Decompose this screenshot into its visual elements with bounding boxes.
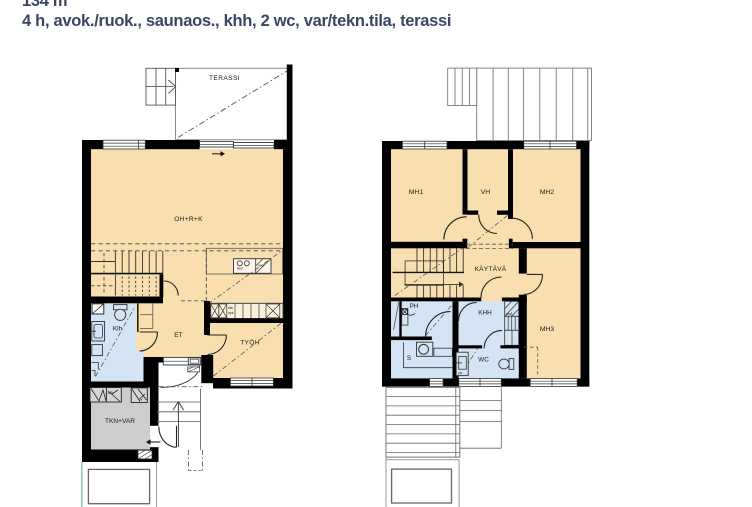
svg-text:PH: PH	[410, 303, 419, 310]
svg-text:KÄYTÄVÄ: KÄYTÄVÄ	[475, 265, 507, 273]
svg-text:MH1: MH1	[409, 189, 424, 196]
svg-text:OH+R+K: OH+R+K	[174, 216, 203, 223]
svg-text:TKN+VAR: TKN+VAR	[105, 418, 135, 425]
svg-text:Klh: Klh	[113, 326, 123, 333]
svg-text:AR: AR	[108, 391, 114, 395]
svg-text:VH: VH	[481, 189, 491, 196]
svg-text:W: W	[139, 398, 143, 402]
svg-text:apk: apk	[228, 311, 234, 315]
svg-text:TERASSI: TERASSI	[209, 75, 240, 82]
svg-text:liesi: liesi	[237, 267, 243, 271]
svg-text:tisk: tisk	[228, 306, 233, 310]
svg-text:pk: pk	[459, 371, 463, 375]
svg-text:KHH: KHH	[478, 310, 492, 317]
svg-text:ET: ET	[174, 332, 182, 339]
svg-text:pkA: pkA	[506, 312, 513, 316]
svg-text:S: S	[407, 355, 411, 362]
svg-text:WC: WC	[478, 357, 489, 364]
svg-text:MH2: MH2	[540, 189, 555, 196]
svg-text:MH3: MH3	[540, 326, 555, 333]
